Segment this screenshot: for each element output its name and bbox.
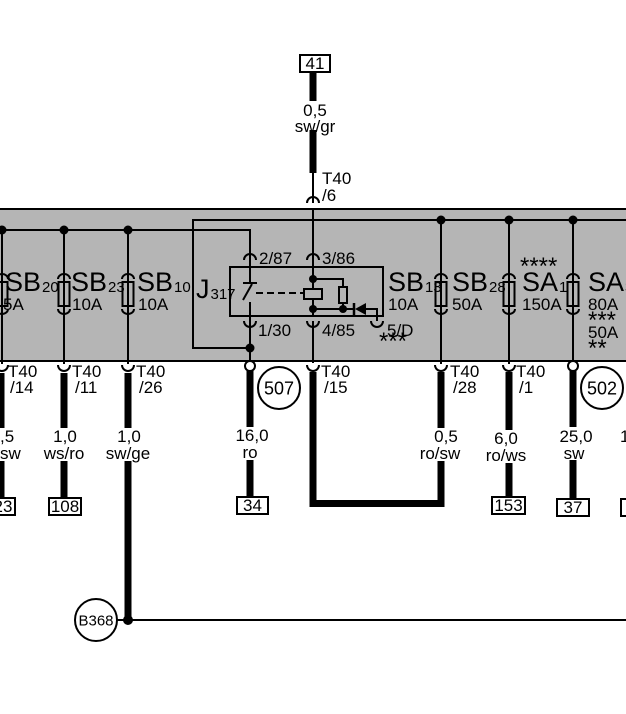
fuse-rating-sb28: 50A xyxy=(452,296,482,313)
fuse-rating-sb10: 10A xyxy=(138,296,168,313)
target-box-23: 23 xyxy=(0,497,16,516)
target-box-108: 108 xyxy=(48,497,82,516)
pin-label-t40-11: /11 xyxy=(75,379,97,396)
pin-label-t40-6: /6 xyxy=(322,187,336,204)
wire-gauge-label: ,5 xyxy=(0,428,14,445)
fuse-rating-sb20: 5A xyxy=(3,296,24,313)
wire-color-label: sw/ge xyxy=(106,445,150,462)
wiring-diagram: 41 0,5 sw/gr T40 /6 SB20 5A SB23 10A SB1… xyxy=(0,0,626,714)
wire-gauge-label: 0,5 xyxy=(434,428,458,445)
relay-coil-icon xyxy=(304,289,322,299)
wire-color-label: ro/ws xyxy=(486,447,527,464)
fuse-label-sb10: SB10 xyxy=(137,272,191,293)
pin-label-t40-28: /28 xyxy=(453,379,477,396)
target-box-37: 37 xyxy=(556,498,590,517)
pin-label-t40-14: /14 xyxy=(10,379,34,396)
bolt-terminal-507 xyxy=(245,361,255,371)
fuse-label-sb28: SB28 xyxy=(452,272,506,293)
pin-label-t40-15: /15 xyxy=(324,379,348,396)
target-box-edge-partial xyxy=(620,498,626,517)
wire-color-label: sw/gr xyxy=(295,118,336,135)
ground-circle-b368-label: B368 xyxy=(78,613,113,630)
connector-label-t40-6: T40 xyxy=(322,170,351,187)
relay-pin-485: 4/85 xyxy=(322,322,355,339)
wire-color-label: sw xyxy=(564,445,585,462)
wire-color-label: ro/sw xyxy=(420,445,461,462)
fuse-label-sb20: SB20 xyxy=(5,272,59,293)
fuse-label-sa1: SA1 xyxy=(522,272,567,293)
wire-gauge-label: 1,0 xyxy=(53,428,77,445)
relay-footnote-stars: *** xyxy=(379,336,407,348)
wire-gauge-label: 16,0 xyxy=(235,427,268,444)
bolt-terminal-502 xyxy=(568,361,578,371)
fuse-label-sb23: SB23 xyxy=(71,272,125,293)
fuse-rating-sa1: 150A xyxy=(522,296,562,313)
target-box-41: 41 xyxy=(299,54,331,73)
connection-circle-502-label: 502 xyxy=(587,379,617,400)
wire-color-label: ws/ro xyxy=(44,445,85,462)
pin-label-t40-26: /26 xyxy=(139,379,163,396)
fuse-note-sa3-alt-stars: ** xyxy=(588,343,607,355)
wire-gauge-label: 6,0 xyxy=(494,430,518,447)
relay-label-j317: J317 xyxy=(196,279,236,300)
fuse-rating-sb13: 10A xyxy=(388,296,418,313)
target-box-34: 34 xyxy=(236,496,269,515)
relay-pin-287: 2/87 xyxy=(259,250,292,267)
target-box-41-label: 41 xyxy=(306,54,325,74)
wire-color-label: ro xyxy=(242,444,257,461)
relay-pin-386: 3/86 xyxy=(322,250,355,267)
fuse-rating-sb23: 10A xyxy=(72,296,102,313)
wire-gauge-label-partial: 1 xyxy=(620,428,626,445)
wire-gauge-label: 1,0 xyxy=(117,428,141,445)
fuse-label-sa3: SA3 xyxy=(588,272,626,293)
wire-gauge-label: 25,0 xyxy=(559,428,592,445)
connection-circle-507-label: 507 xyxy=(264,379,294,400)
relay-pin-130: 1/30 xyxy=(258,322,291,339)
wire-color-label: sw xyxy=(0,445,21,462)
pin-label-t40-1: /1 xyxy=(519,379,533,396)
relay-resistor-icon xyxy=(339,287,347,303)
target-box-153: 153 xyxy=(491,496,526,515)
fuse-label-sb13: SB13 xyxy=(388,272,442,293)
